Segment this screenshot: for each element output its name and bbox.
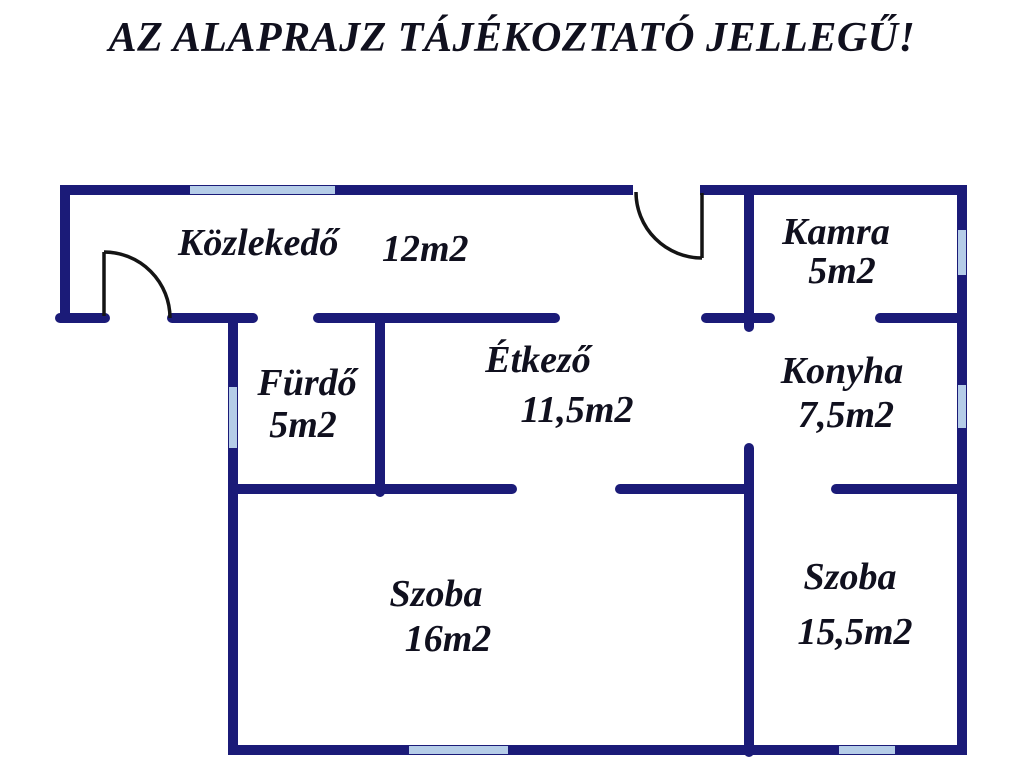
room-label-szoba-2: Szoba <box>740 558 960 596</box>
room-area-kozlekedo: 12m2 <box>382 230 469 268</box>
room-area-etkezo: 11,5m2 <box>467 391 687 429</box>
room-label-kozlekedo: Közlekedő <box>178 224 338 262</box>
room-label-etkezo: Étkező <box>428 341 648 379</box>
room-area-konyha: 7,5m2 <box>736 396 956 434</box>
room-label-szoba-1: Szoba <box>326 575 546 613</box>
room-label-kamra: Kamra <box>726 213 946 251</box>
room-area-kamra: 5m2 <box>732 252 952 290</box>
room-area-szoba-2: 15,5m2 <box>745 613 965 651</box>
floorplan-page: AZ ALAPRAJZ TÁJÉKOZTATÓ JELLEGŰ! <box>0 0 1024 768</box>
room-area-furdo: 5m2 <box>193 406 413 444</box>
room-label-furdo: Fürdő <box>197 364 417 402</box>
room-label-konyha: Konyha <box>732 352 952 390</box>
room-area-szoba-1: 16m2 <box>338 620 558 658</box>
door-top-swing-arc <box>636 192 702 258</box>
door-entry-swing-arc <box>104 252 170 318</box>
